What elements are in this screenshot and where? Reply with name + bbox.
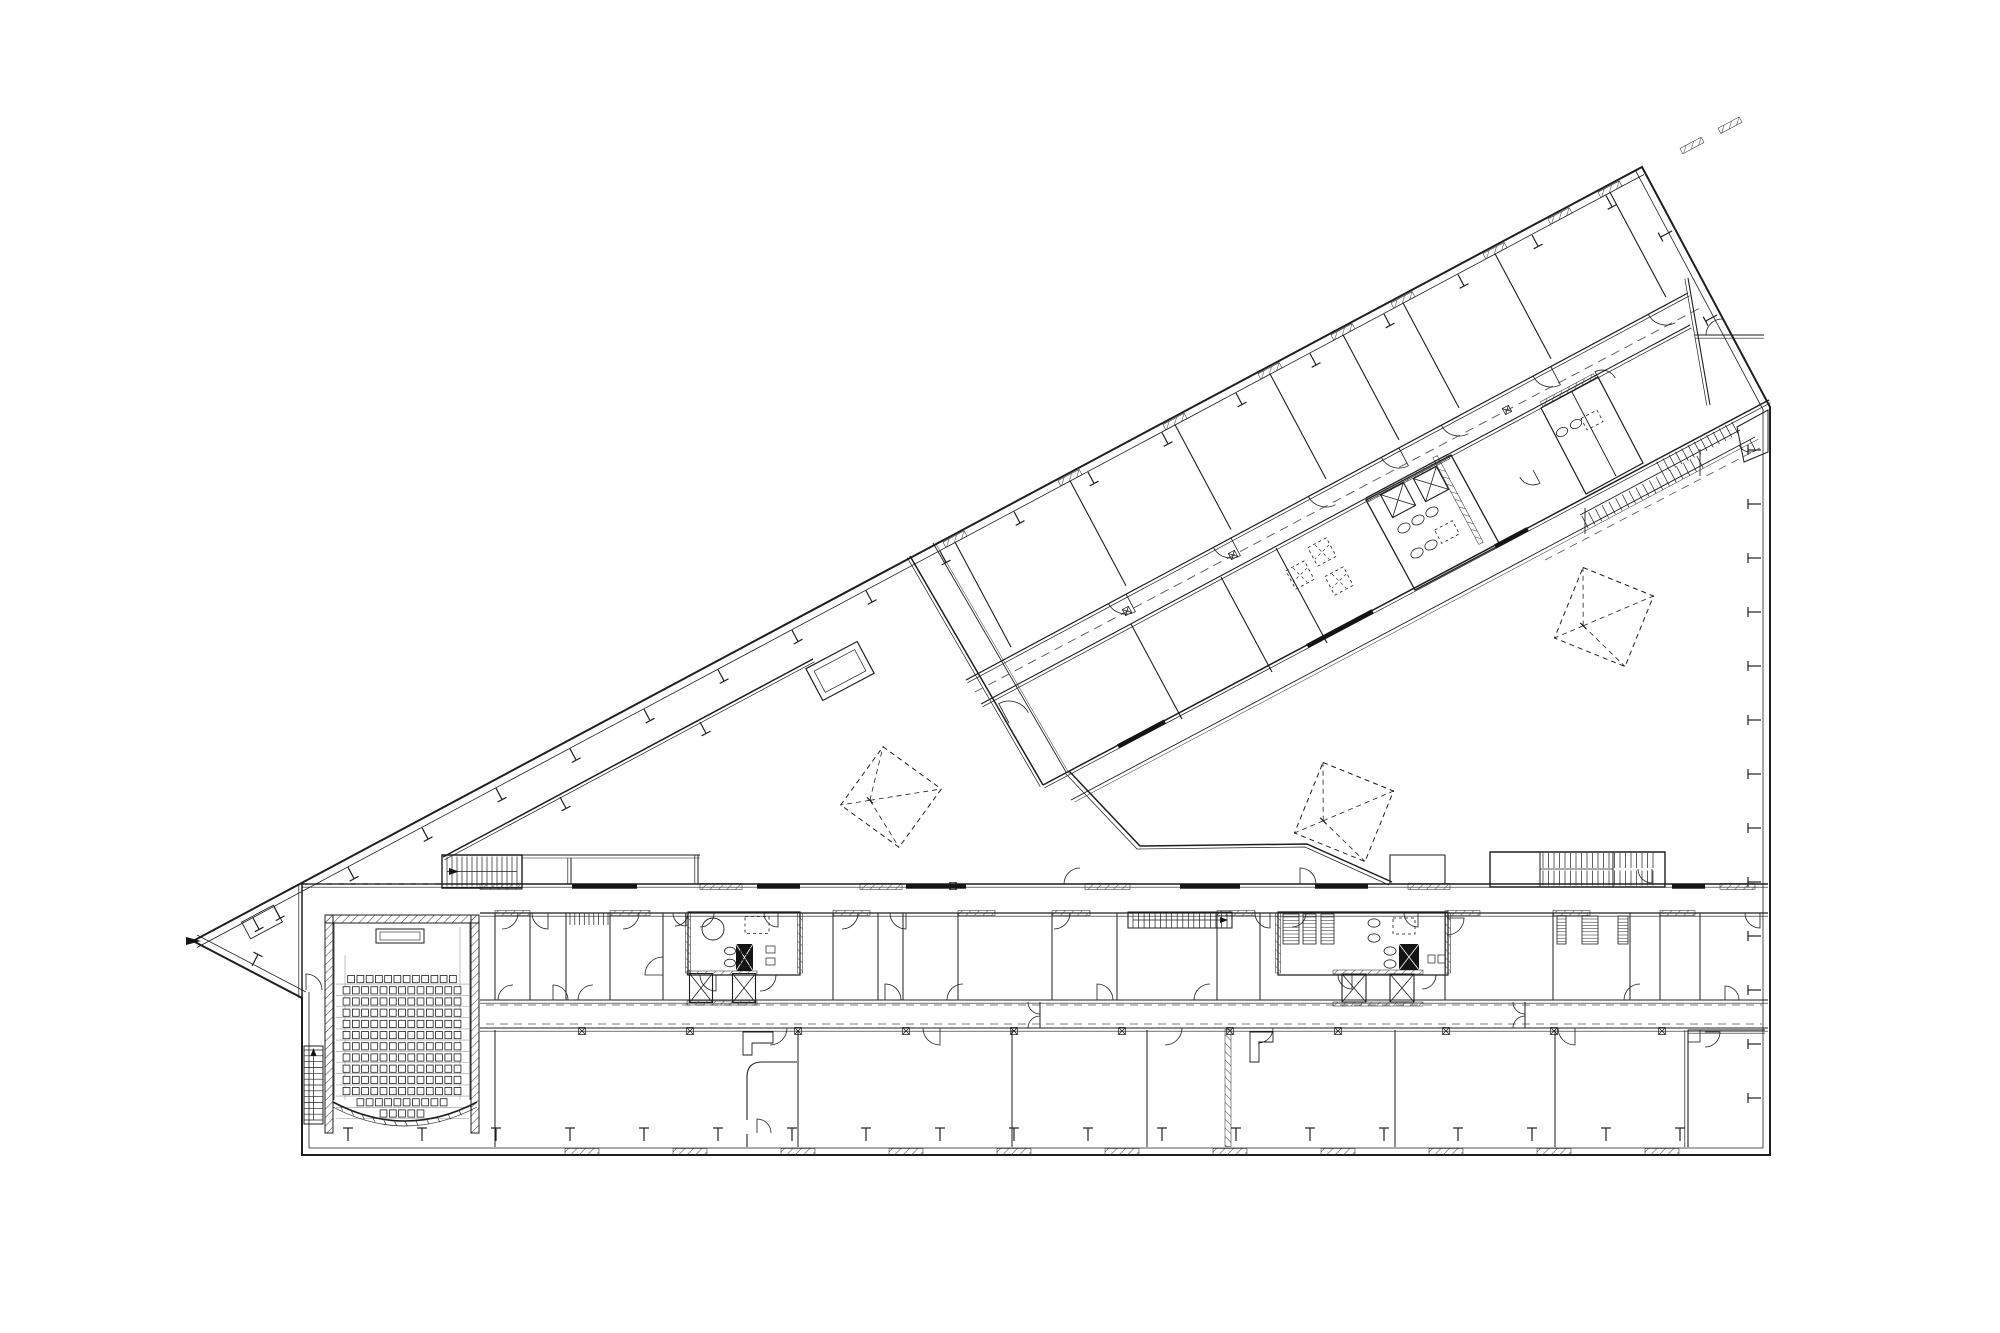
paper-background bbox=[0, 0, 2000, 1333]
floor-plan-drawing bbox=[0, 0, 2000, 1333]
floor-plan-canvas bbox=[0, 0, 2000, 1333]
